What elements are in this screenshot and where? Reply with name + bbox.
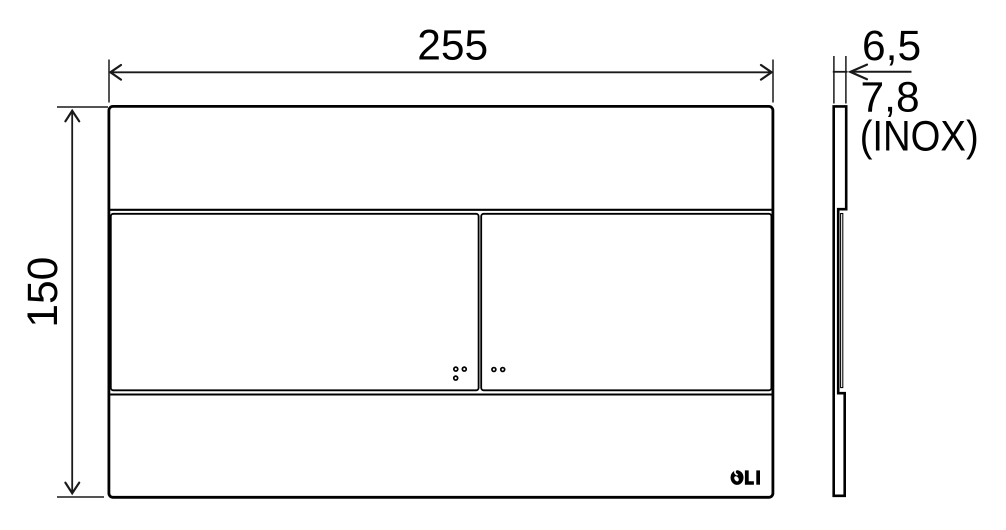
svg-text:6,5: 6,5 — [862, 23, 921, 70]
svg-text:(INOX): (INOX) — [860, 114, 979, 161]
svg-text:255: 255 — [417, 23, 488, 70]
svg-text:150: 150 — [20, 257, 67, 328]
